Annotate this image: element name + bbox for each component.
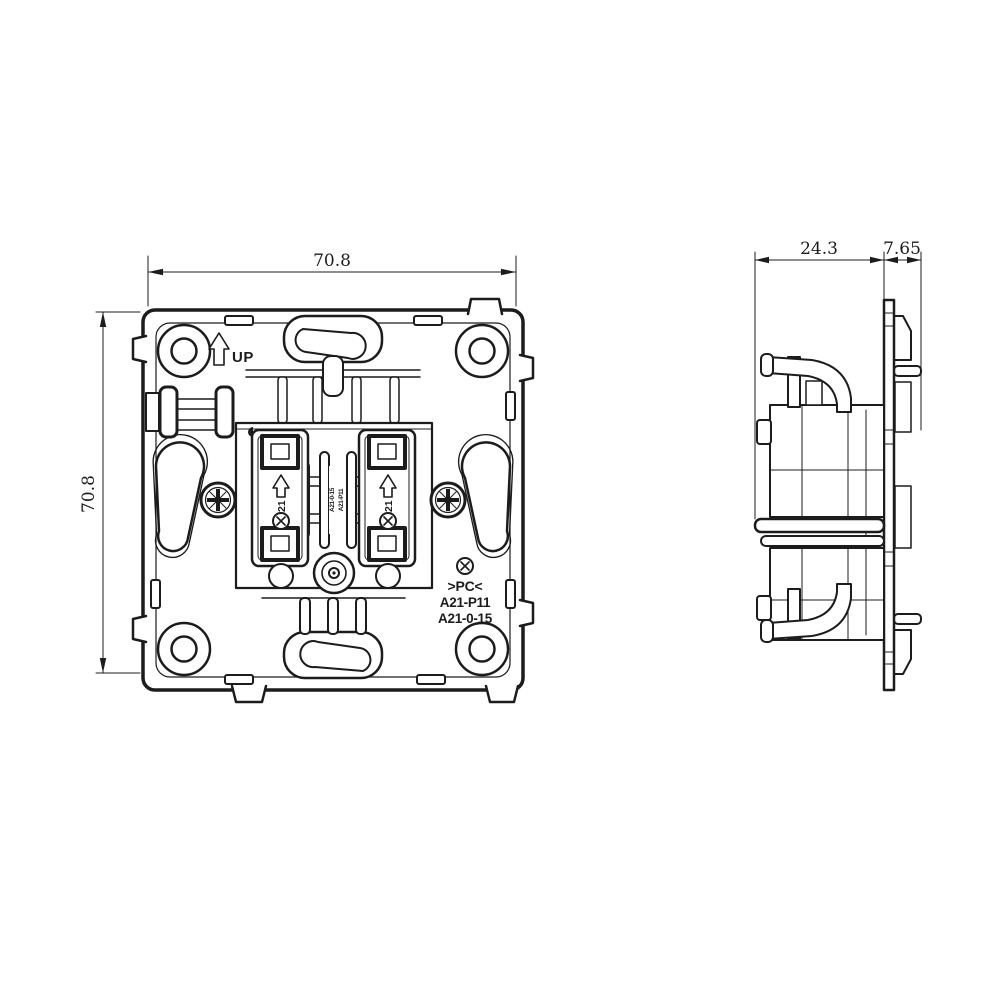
rear-cover-lower [894,630,911,674]
side-view: 24.3 7.65 [755,239,921,690]
dimension-front-height-text: 70.8 [79,475,99,513]
dimension-front-width: 70.8 [148,251,516,306]
part-number-1: A21-P11 [440,595,491,610]
frame-tab-bottom-left [232,686,266,702]
drawing-canvas: 70.8 70.8 [0,0,1000,1000]
center-stamp-col2: A21-P11 [338,488,345,511]
wall-tab [417,675,445,684]
center-screw-boss [314,553,354,593]
wall-tab [225,316,253,325]
frame-tab-right-lower [520,600,533,626]
rear-rib [895,486,911,548]
circled-x-icon [380,513,396,529]
rear-cover-upper [894,316,911,360]
up-label: UP [232,349,254,366]
dimension-side-body-text: 24.3 [800,239,838,259]
mechanism-side-body [755,354,884,642]
wall-tab [506,580,515,608]
dimension-front-width-text: 70.8 [313,251,351,271]
center-stamp-col1: A21-0-15 [329,487,336,512]
pozidriv-screw-icon [201,483,235,517]
pozidriv-screw-icon [431,483,465,517]
latch-tab-lower [894,614,921,624]
rocker-module-right: A21 [359,430,415,566]
rocker-module-left: A21 [252,430,308,566]
material-mark: >PC< [448,578,483,594]
frame-tab-top [468,299,502,314]
frame-tab-left-lower [133,616,146,642]
wall-tab [151,580,160,608]
wall-tab [225,675,253,684]
frame-tab-right-upper [520,355,533,381]
circled-x-icon [273,513,289,529]
part-number-2: A21-0-15 [438,611,493,626]
mounting-plate [884,300,894,690]
bottom-claw-slot [284,632,382,678]
module-boss [269,564,293,588]
dimension-side-flange-text: 7.65 [883,239,921,259]
wall-tab [414,316,442,325]
dimension-front-height: 70.8 [79,312,140,673]
frame-tab-left-upper [133,336,146,362]
frame-tab-bottom-right [486,686,518,702]
front-view: 70.8 70.8 [79,251,533,702]
circled-x-icon [457,558,473,574]
latch-tab-upper [894,366,921,376]
support-bar [755,519,884,532]
wall-tab [506,392,515,420]
module-boss [376,564,400,588]
switch-mechanism: A21-0-15 A21-P11 A21 [236,423,432,593]
latch-tooth [806,381,822,405]
support-bar [761,536,884,546]
rear-rib [895,382,911,432]
